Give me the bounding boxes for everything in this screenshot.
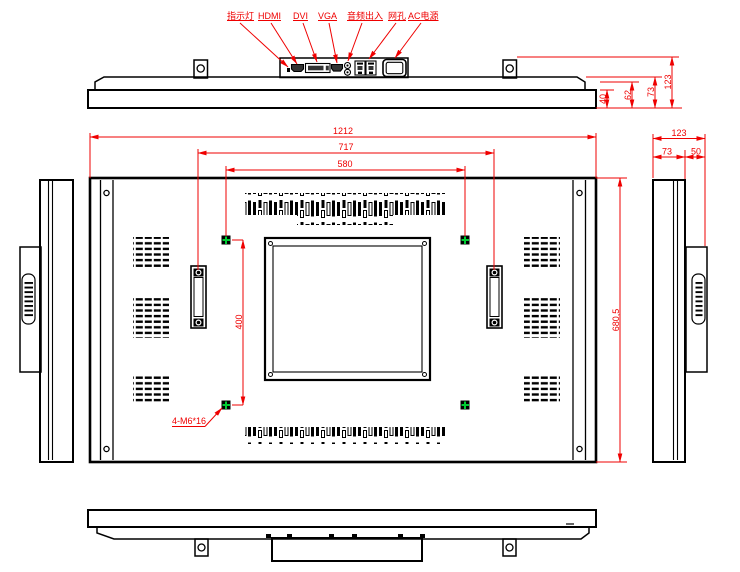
label-dvi: DVI (293, 11, 308, 22)
top-rear-band (95, 77, 585, 90)
left-side-body (40, 180, 73, 462)
right-side-panel-lines (674, 181, 678, 460)
dim-vesa-width: 580 (337, 159, 352, 169)
top-vent-strip-row2 (297, 215, 393, 225)
top-vent-strip (245, 193, 445, 215)
mount-hole-note: 4-M6*16 (172, 416, 206, 426)
left-heatsink-core-slats (25, 280, 34, 318)
bottom-mount-tab-left (195, 539, 208, 556)
dim-overall-width: 1212 (333, 126, 353, 136)
left-side-view (20, 180, 73, 462)
dim-depth-total: 123 (663, 74, 673, 89)
dim-handle-span: 717 (338, 142, 353, 152)
bottom-mount-hole-left (198, 544, 205, 551)
left-side-panel-lines (49, 181, 53, 460)
top-view (88, 58, 596, 108)
center-access-plate (265, 238, 430, 380)
right-heatsink-core-slats (694, 280, 703, 318)
dvi-pins (308, 66, 324, 71)
bottom-mount-tab-right (503, 539, 516, 556)
hdmi-port (292, 65, 304, 72)
bottom-view (88, 510, 596, 561)
top-mount-hole-right (506, 65, 513, 72)
audio-jack-2-pin (346, 71, 348, 73)
right-side-view (653, 180, 707, 462)
side-view-dimensions: 123 73 50 (653, 128, 705, 246)
bottom-mount-hole-right (506, 544, 513, 551)
dim-side-total-depth: 123 (671, 128, 686, 138)
top-mount-tab-right (503, 60, 517, 78)
back-view-dimensions: 1212 717 580 680,5 400 4-M6*16 (90, 126, 627, 462)
lan-port-2 (366, 61, 376, 75)
bottom-front-band (88, 510, 596, 527)
label-audio-io: 音频出入 (347, 11, 383, 22)
handle-left (191, 266, 206, 328)
top-mount-tab-left (194, 60, 208, 78)
label-indicator-led: 指示灯 (227, 11, 254, 22)
engineering-drawing-canvas: 40 62 73 123 1212 717 580 (0, 0, 740, 572)
io-ports (287, 60, 406, 77)
label-hdmi: HDMI (258, 11, 281, 22)
top-view-dimensions: 40 62 73 123 (517, 57, 682, 108)
dvi-blade (326, 66, 329, 71)
audio-jack-1-pin (346, 64, 348, 66)
dim-overall-height: 680,5 (611, 309, 621, 332)
top-front-band (88, 90, 596, 108)
label-ac-power: AC电源 (408, 11, 439, 22)
handle-right (487, 266, 502, 328)
label-lan: 网孔 (388, 11, 406, 22)
vga-port (332, 65, 343, 72)
label-vga: VGA (318, 11, 337, 22)
right-side-body (653, 180, 685, 462)
dim-side-front-depth: 73 (662, 147, 672, 157)
bottom-speaker-grille (272, 538, 422, 561)
engineering-drawing-page: 40 62 73 123 1212 717 580 (0, 0, 740, 572)
lan-port-1 (355, 61, 365, 75)
top-mount-hole-left (197, 65, 204, 72)
dim-vesa-height: 400 (234, 314, 244, 329)
dim-depth-body: 73 (646, 87, 656, 97)
dim-side-rear-depth: 50 (691, 147, 701, 157)
indicator-led (287, 68, 290, 72)
dim-depth-step1: 40 (598, 94, 608, 104)
back-view (90, 178, 596, 462)
bottom-vent-strip (245, 427, 445, 444)
dim-depth-step2: 62 (623, 90, 633, 100)
vesa-mount-holes (222, 236, 470, 410)
